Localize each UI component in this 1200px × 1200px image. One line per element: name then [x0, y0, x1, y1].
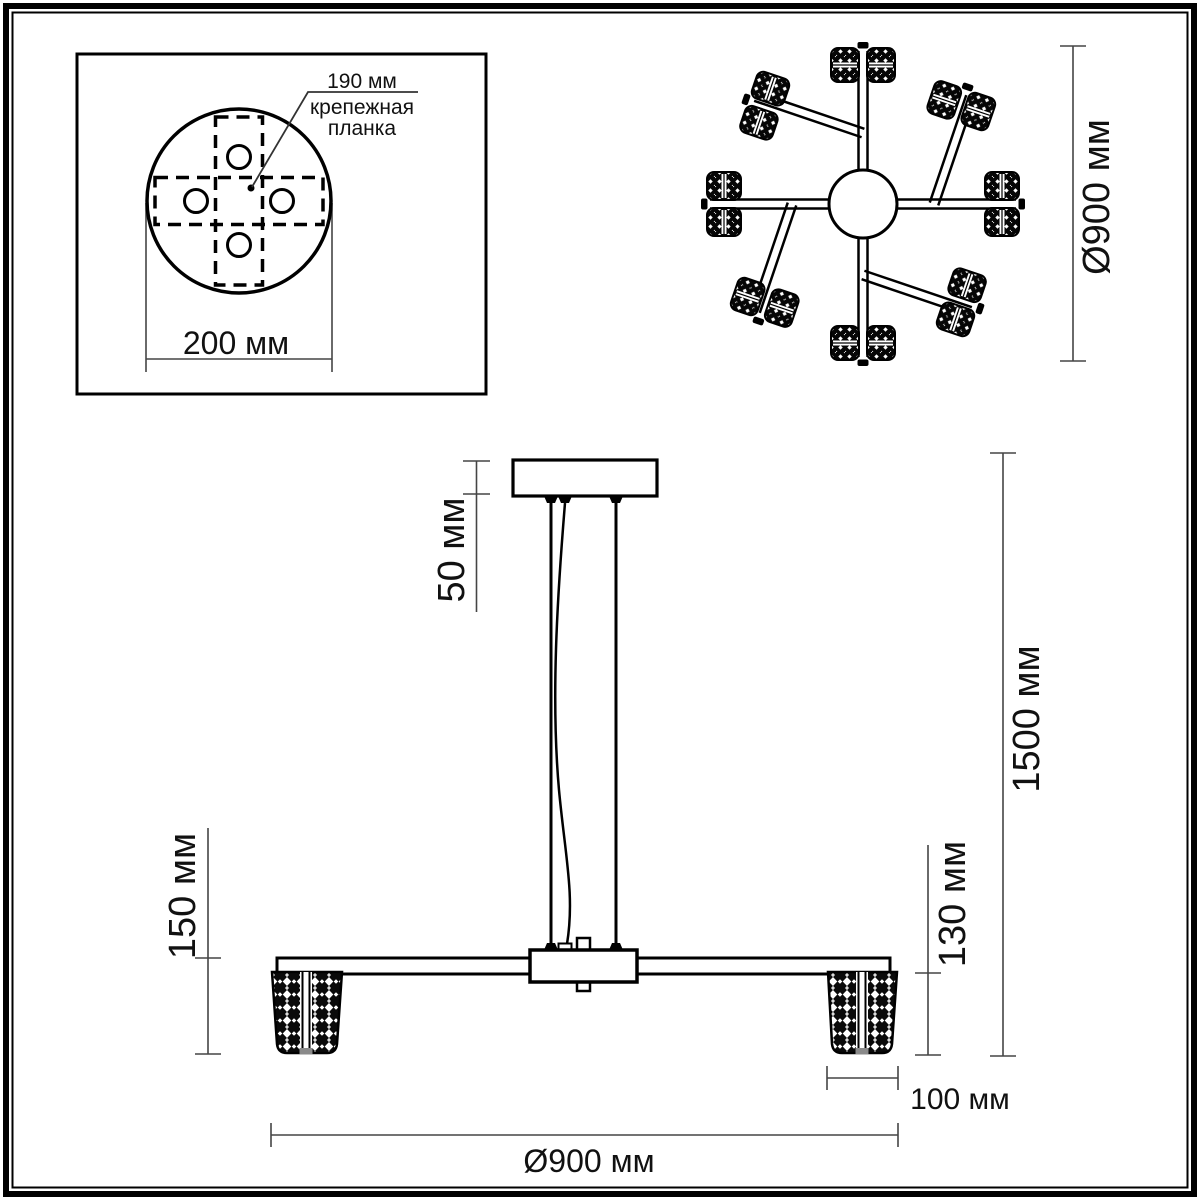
shade-height-dim-label: 130 мм — [931, 814, 975, 994]
left-shade — [272, 972, 342, 1055]
plate-diameter-dim-label: 200 мм — [146, 326, 326, 360]
top-view-diameter-dim-label: Ø900 мм — [1075, 87, 1119, 307]
right-shade — [828, 972, 897, 1055]
bracket-length-dim-label: 190 мм — [292, 69, 432, 95]
bracket-name-label: крепежная планка — [277, 97, 447, 139]
bracket-name-line2: планка — [328, 118, 396, 139]
top-view-drawing — [701, 42, 1086, 366]
shade-width-dim-label: 100 мм — [880, 1084, 1040, 1116]
side-view-drawing — [195, 453, 1016, 1147]
fixture-diameter-dim-label: Ø900 мм — [489, 1143, 689, 1179]
center-hub — [530, 950, 637, 982]
canopy-height-dim-label: 50 мм — [430, 470, 474, 630]
power-cord — [555, 503, 570, 944]
ceiling-canopy — [513, 460, 657, 496]
left-drop-dim-label: 150 мм — [161, 806, 205, 986]
technical-drawing-page: 190 мм крепежная планка 200 мм Ø900 мм 5… — [0, 0, 1200, 1200]
bracket-name-line1: крепежная — [310, 97, 414, 118]
drawing-canvas — [0, 0, 1200, 1200]
total-height-dim-label: 1500 мм — [1005, 609, 1049, 829]
